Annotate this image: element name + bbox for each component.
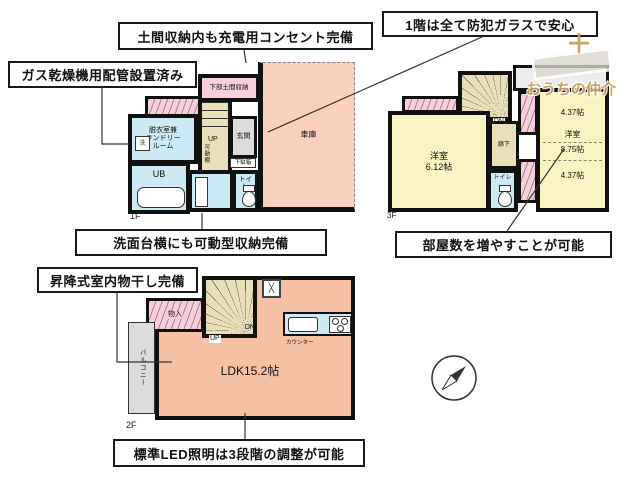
- stairs-1f: UP 可動棚: [198, 102, 232, 170]
- washer-icon: 洗: [135, 136, 150, 151]
- logo-plus-icon: ＋: [566, 24, 592, 61]
- room-divider-dashed: [543, 142, 602, 143]
- room-washstand: [188, 170, 234, 212]
- bedroom-east-name: 洋室: [540, 130, 605, 139]
- note-washstand-storage: 洗面台横にも可動型収納完備: [75, 229, 327, 256]
- toilet-bowl-icon: [242, 191, 256, 207]
- bedroom-east-bottom-size: 4.37帖: [540, 171, 605, 180]
- shoe-box-label: 下駄箱: [235, 160, 252, 166]
- room-divider-dashed: [543, 160, 602, 161]
- hallway-label: 廊下: [498, 142, 510, 149]
- kitchen-counter: [283, 312, 353, 336]
- room-doma-storage: 下部土間収納: [198, 74, 260, 102]
- burner-icon: [341, 318, 348, 325]
- floor3-label: 3F: [387, 211, 396, 220]
- room-toilet-1f: トイレ: [232, 170, 259, 212]
- closet-3f-west-icon: [402, 96, 459, 113]
- bedroom-east-top-size: 4.37帖: [540, 108, 605, 117]
- room-unit-bath: UB: [128, 162, 190, 214]
- vent-box-icon: ╳: [262, 279, 281, 298]
- note-led-light: 標準LED照明は3段階の調整が可能: [113, 439, 365, 467]
- unit-bath-label: UB: [153, 169, 166, 179]
- logo-text: おうちの仲介: [526, 78, 616, 99]
- shoe-box: 下駄箱: [230, 158, 256, 168]
- stairs-up-label: UP: [208, 136, 218, 144]
- doma-storage-label: 下部土間収納: [210, 84, 249, 91]
- note-room-increase: 部屋数を増やすことが可能: [395, 231, 612, 258]
- floor1-label: 1F: [130, 211, 141, 221]
- counter-label: カウンター: [286, 338, 314, 346]
- room-laundry: 脱衣室兼 ランドリー ルーム 洗: [128, 114, 198, 164]
- note-gas-dryer: ガス乾燥機用配管設置済み: [8, 61, 197, 88]
- room-bedroom-east: 4.37帖 洋室 8.75帖 4.37帖: [536, 88, 609, 212]
- watermark-logo: ＋ おうちの仲介: [526, 28, 618, 102]
- stairs-2f: UP DN: [202, 276, 257, 338]
- room-garage: 車庫: [258, 62, 355, 212]
- stairs-2f-up-label: UP: [209, 335, 221, 343]
- bedroom-east-size: 8.75帖: [540, 145, 605, 154]
- room-balcony: バルコニー: [128, 322, 155, 414]
- movable-shelf-label: 可動棚: [203, 144, 209, 164]
- toilet-3f-icon: [498, 191, 512, 207]
- note-doma-outlet: 土間収納内も充電用コンセント完備: [118, 22, 373, 50]
- sink-icon: [288, 317, 318, 332]
- compass-icon: [430, 354, 478, 402]
- room-toilet-3f: トイレ: [487, 169, 518, 212]
- toilet-3f-label: トイレ: [493, 175, 511, 182]
- closet-3f-east-bottom-icon: [518, 159, 538, 203]
- entrance-label: 玄関: [237, 133, 251, 141]
- note-indoor-drying: 昇降式室内物干し完備: [37, 267, 198, 293]
- ldk-label: LDK15.2帖: [190, 362, 310, 379]
- room-bedroom-west: 洋室 6.12帖: [388, 111, 490, 212]
- stair-treads-icon: [202, 102, 228, 134]
- stove-icon: [329, 316, 351, 333]
- vanity-icon: [195, 177, 208, 207]
- stairs-2f-dn-label: DN: [245, 324, 255, 332]
- floorplan-page: { "annotations": { "doma_outlet": "土間収納内…: [0, 0, 637, 480]
- burner-icon: [332, 318, 339, 325]
- floor2-label: 2F: [126, 420, 137, 430]
- room-hallway: 廊下: [489, 121, 519, 169]
- bathtub-icon: [137, 187, 185, 208]
- room-entrance: 玄関: [230, 116, 257, 158]
- closet-2f-label: 物入: [167, 311, 183, 319]
- garage-label: 車庫: [301, 130, 317, 139]
- laundry-label: 脱衣室兼 ランドリー ルーム: [146, 127, 181, 151]
- burner-icon: [337, 325, 344, 332]
